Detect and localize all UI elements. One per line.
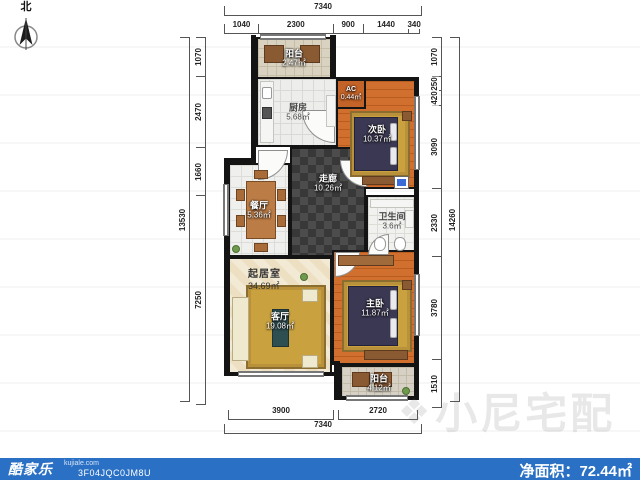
dim-label: 1070: [195, 47, 203, 67]
window: [414, 274, 420, 336]
sink: [394, 237, 406, 251]
dim-segment: 2330: [432, 188, 442, 256]
dresser: [362, 176, 398, 185]
wall: [251, 77, 256, 163]
dim-label: 1040: [232, 21, 252, 29]
stove: [262, 107, 272, 119]
wall: [336, 77, 418, 81]
dim-label: 1070: [431, 47, 439, 67]
brand-logo: 酷家乐: [8, 459, 53, 479]
pillow: [390, 147, 397, 165]
dim-label: 3780: [431, 298, 439, 318]
dim-label: 3900: [271, 407, 291, 415]
wall: [334, 361, 340, 400]
footer-bar: 酷家乐 kujiale.com 3F04JQC0JM8U 净面积：72.44㎡: [0, 458, 640, 480]
dim-label: 1660: [195, 162, 203, 182]
chair: [254, 170, 268, 179]
dim-segment: 2300: [258, 24, 333, 34]
dim-label: 340: [406, 21, 421, 29]
watermark-cube-icon: ❖: [398, 391, 433, 432]
dim-left-total: 13530: [180, 37, 190, 402]
pillow: [390, 290, 397, 310]
dim-label: 3090: [431, 137, 439, 157]
bath-counter: [370, 199, 414, 208]
bath-cabinet: [405, 210, 414, 228]
net-area-label: 净面积：: [519, 463, 579, 480]
dim-segment: 340: [408, 24, 420, 34]
planter: [264, 45, 284, 63]
compass: 北: [8, 2, 44, 58]
dining-table: [246, 181, 276, 239]
chair: [254, 243, 268, 252]
nightstand: [402, 280, 412, 290]
dim-segment: 3900: [228, 410, 334, 420]
planter: [352, 372, 370, 387]
dim-label: 2330: [431, 213, 439, 233]
appliance-mark: [397, 179, 406, 186]
room-area: 0.44㎡: [338, 94, 364, 102]
plan-id: 3F04JQC0JM8U: [78, 468, 151, 478]
desk: [338, 255, 394, 266]
watermark: ❖小尼宅配: [398, 380, 615, 441]
nightstand: [402, 111, 412, 121]
room-name: AC: [338, 86, 364, 94]
dim-label: 900: [340, 21, 355, 29]
dim-bottom-total: 7340: [224, 424, 422, 434]
dim-label: 2300: [286, 21, 306, 29]
kitchen-counter: [326, 95, 336, 127]
dim-label: 2720: [368, 407, 388, 415]
dim-segment: 900: [333, 24, 363, 34]
dim-segment: 3090: [432, 105, 442, 188]
net-area-value: 72.44㎡: [579, 463, 632, 480]
dim-segment: 420: [432, 90, 442, 105]
room-living-quarters: 起居室 34.69㎡ 客厅 19.08㎡: [228, 257, 332, 375]
dim-segment: 1440: [363, 24, 409, 34]
dim-segment: 3780: [432, 256, 442, 359]
window: [260, 34, 326, 40]
planter: [374, 372, 392, 387]
chair: [236, 215, 245, 227]
window: [223, 184, 229, 236]
room-bathroom: 卫生间 3.6㎡: [366, 195, 418, 257]
plant: [300, 273, 308, 281]
room-dining: 餐厅 5.36㎡: [228, 163, 290, 257]
room-balcony-top: 阳台 2.47㎡: [256, 37, 332, 79]
floorplan-canvas: 北 7340 1040 2300 900 1440 340 13530 1070…: [0, 0, 640, 480]
dim-label: 250: [431, 76, 439, 91]
armchair: [302, 289, 318, 302]
dim-top-segments: 1040 2300 900 1440 340: [224, 24, 420, 34]
north-arrow-icon: [8, 13, 44, 53]
dim-segment: 2470: [196, 76, 206, 147]
net-area: 净面积：72.44㎡: [519, 460, 632, 480]
wall: [251, 35, 256, 79]
window: [414, 96, 420, 170]
chair: [277, 215, 286, 227]
dim-segment: 7250: [196, 195, 206, 405]
chair: [277, 189, 286, 201]
coffee-table: [272, 309, 289, 347]
dim-right-total: 14260: [450, 37, 460, 402]
room-ac-closet: AC 0.44㎡: [336, 79, 366, 109]
dim-left-segments: 1070 2470 1660 7250: [196, 37, 206, 405]
dim-segment: 1040: [224, 24, 258, 34]
dim-segment: 1070: [432, 37, 442, 76]
dim-segment: 1660: [196, 147, 206, 195]
window: [238, 371, 324, 377]
sink: [262, 87, 272, 99]
dim-label: 420: [431, 90, 439, 105]
dim-segment: 1070: [196, 37, 206, 76]
sofa: [232, 297, 249, 361]
dim-segment: 250: [432, 76, 442, 90]
dim-top-total: 7340: [224, 6, 422, 16]
dim-label: 13530: [179, 207, 187, 231]
dim-label: 1440: [376, 21, 396, 29]
wall: [224, 158, 256, 163]
plant: [232, 245, 240, 253]
north-label: 北: [8, 2, 44, 13]
appliance-icon: [394, 176, 409, 189]
dim-right-segments: 1070 250 420 3090 2330 3780 1510: [432, 37, 442, 408]
dim-label: 7340: [313, 421, 333, 429]
pillow: [390, 318, 397, 338]
chair: [236, 189, 245, 201]
room-name: 起居室: [248, 269, 281, 280]
room-area: 10.26㎡: [292, 183, 364, 192]
dim-label: 7340: [313, 3, 333, 11]
dim-label: 7250: [195, 290, 203, 310]
wall: [330, 35, 336, 79]
dim-label: 14260: [449, 207, 457, 231]
wardrobe: [364, 350, 408, 360]
dim-label: 2470: [195, 102, 203, 122]
pillow: [390, 123, 397, 141]
watermark-text: 小尼宅配: [435, 390, 615, 437]
armchair: [302, 355, 318, 368]
dim-bottom-segments: 3900: [228, 410, 334, 420]
brand-domain: kujiale.com: [64, 460, 99, 467]
planter: [300, 45, 320, 63]
room-label: AC 0.44㎡: [338, 86, 364, 102]
toilet: [374, 237, 386, 251]
